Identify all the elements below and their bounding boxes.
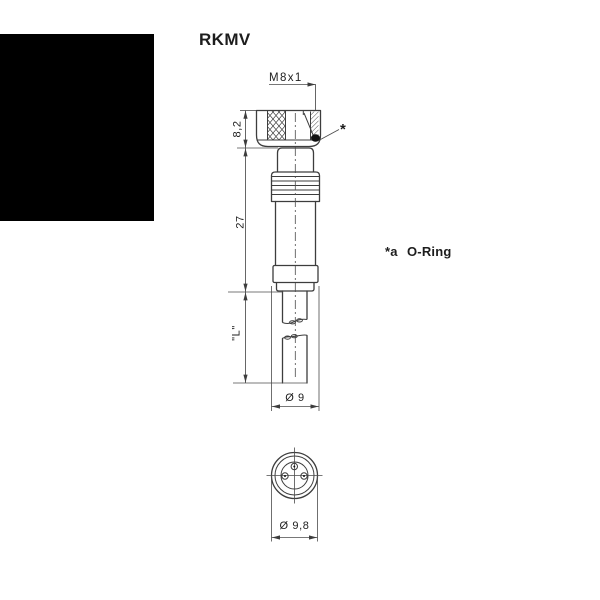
cable xyxy=(283,291,308,383)
dim-face-diameter: Ø 9,8 xyxy=(280,520,310,532)
redaction-block xyxy=(0,34,154,221)
arrow-82-down xyxy=(243,140,247,148)
connector-side-view xyxy=(257,111,321,384)
pin-left-dot xyxy=(284,475,286,477)
arrow-82-up xyxy=(243,111,247,119)
dim-body-length: 27 xyxy=(235,215,247,228)
arrow-L-down xyxy=(243,375,247,383)
arrow-dia9-right xyxy=(311,404,319,408)
dim-body-diameter: Ø 9 xyxy=(285,392,305,404)
arrow-dia9-left xyxy=(272,404,280,408)
thread-callout: M8x1 xyxy=(269,72,316,110)
arrow-27-down xyxy=(243,284,247,292)
arrow-27-up xyxy=(243,148,247,156)
connector-body xyxy=(272,113,320,380)
dim-cable-length: "L" xyxy=(231,325,243,341)
note-text: O-Ring xyxy=(407,244,452,259)
pin-right-dot xyxy=(303,475,305,477)
oring-note: *a O-Ring xyxy=(385,244,452,259)
oring-leader-line xyxy=(321,130,340,140)
thread-leader-arrow xyxy=(308,82,316,86)
thread-label: M8x1 xyxy=(269,72,303,84)
oring-pointer-star: * xyxy=(340,121,346,138)
knurl-band xyxy=(268,111,286,141)
technical-drawing-canvas: RKMV xyxy=(0,0,600,600)
connector-face-view xyxy=(267,448,323,504)
coupling-nut xyxy=(257,111,321,147)
o-ring xyxy=(311,134,320,142)
note-marker: *a xyxy=(385,244,398,259)
thread-leader-line xyxy=(269,85,316,111)
arrow-dia98-left xyxy=(272,535,280,539)
page-title: RKMV xyxy=(199,30,251,49)
arrow-dia98-right xyxy=(309,535,317,539)
oring-callout: * xyxy=(321,121,347,140)
arrow-L-up xyxy=(243,292,247,300)
pin-top-dot xyxy=(293,466,295,468)
dim-nut-height: 8,2 xyxy=(232,120,244,137)
